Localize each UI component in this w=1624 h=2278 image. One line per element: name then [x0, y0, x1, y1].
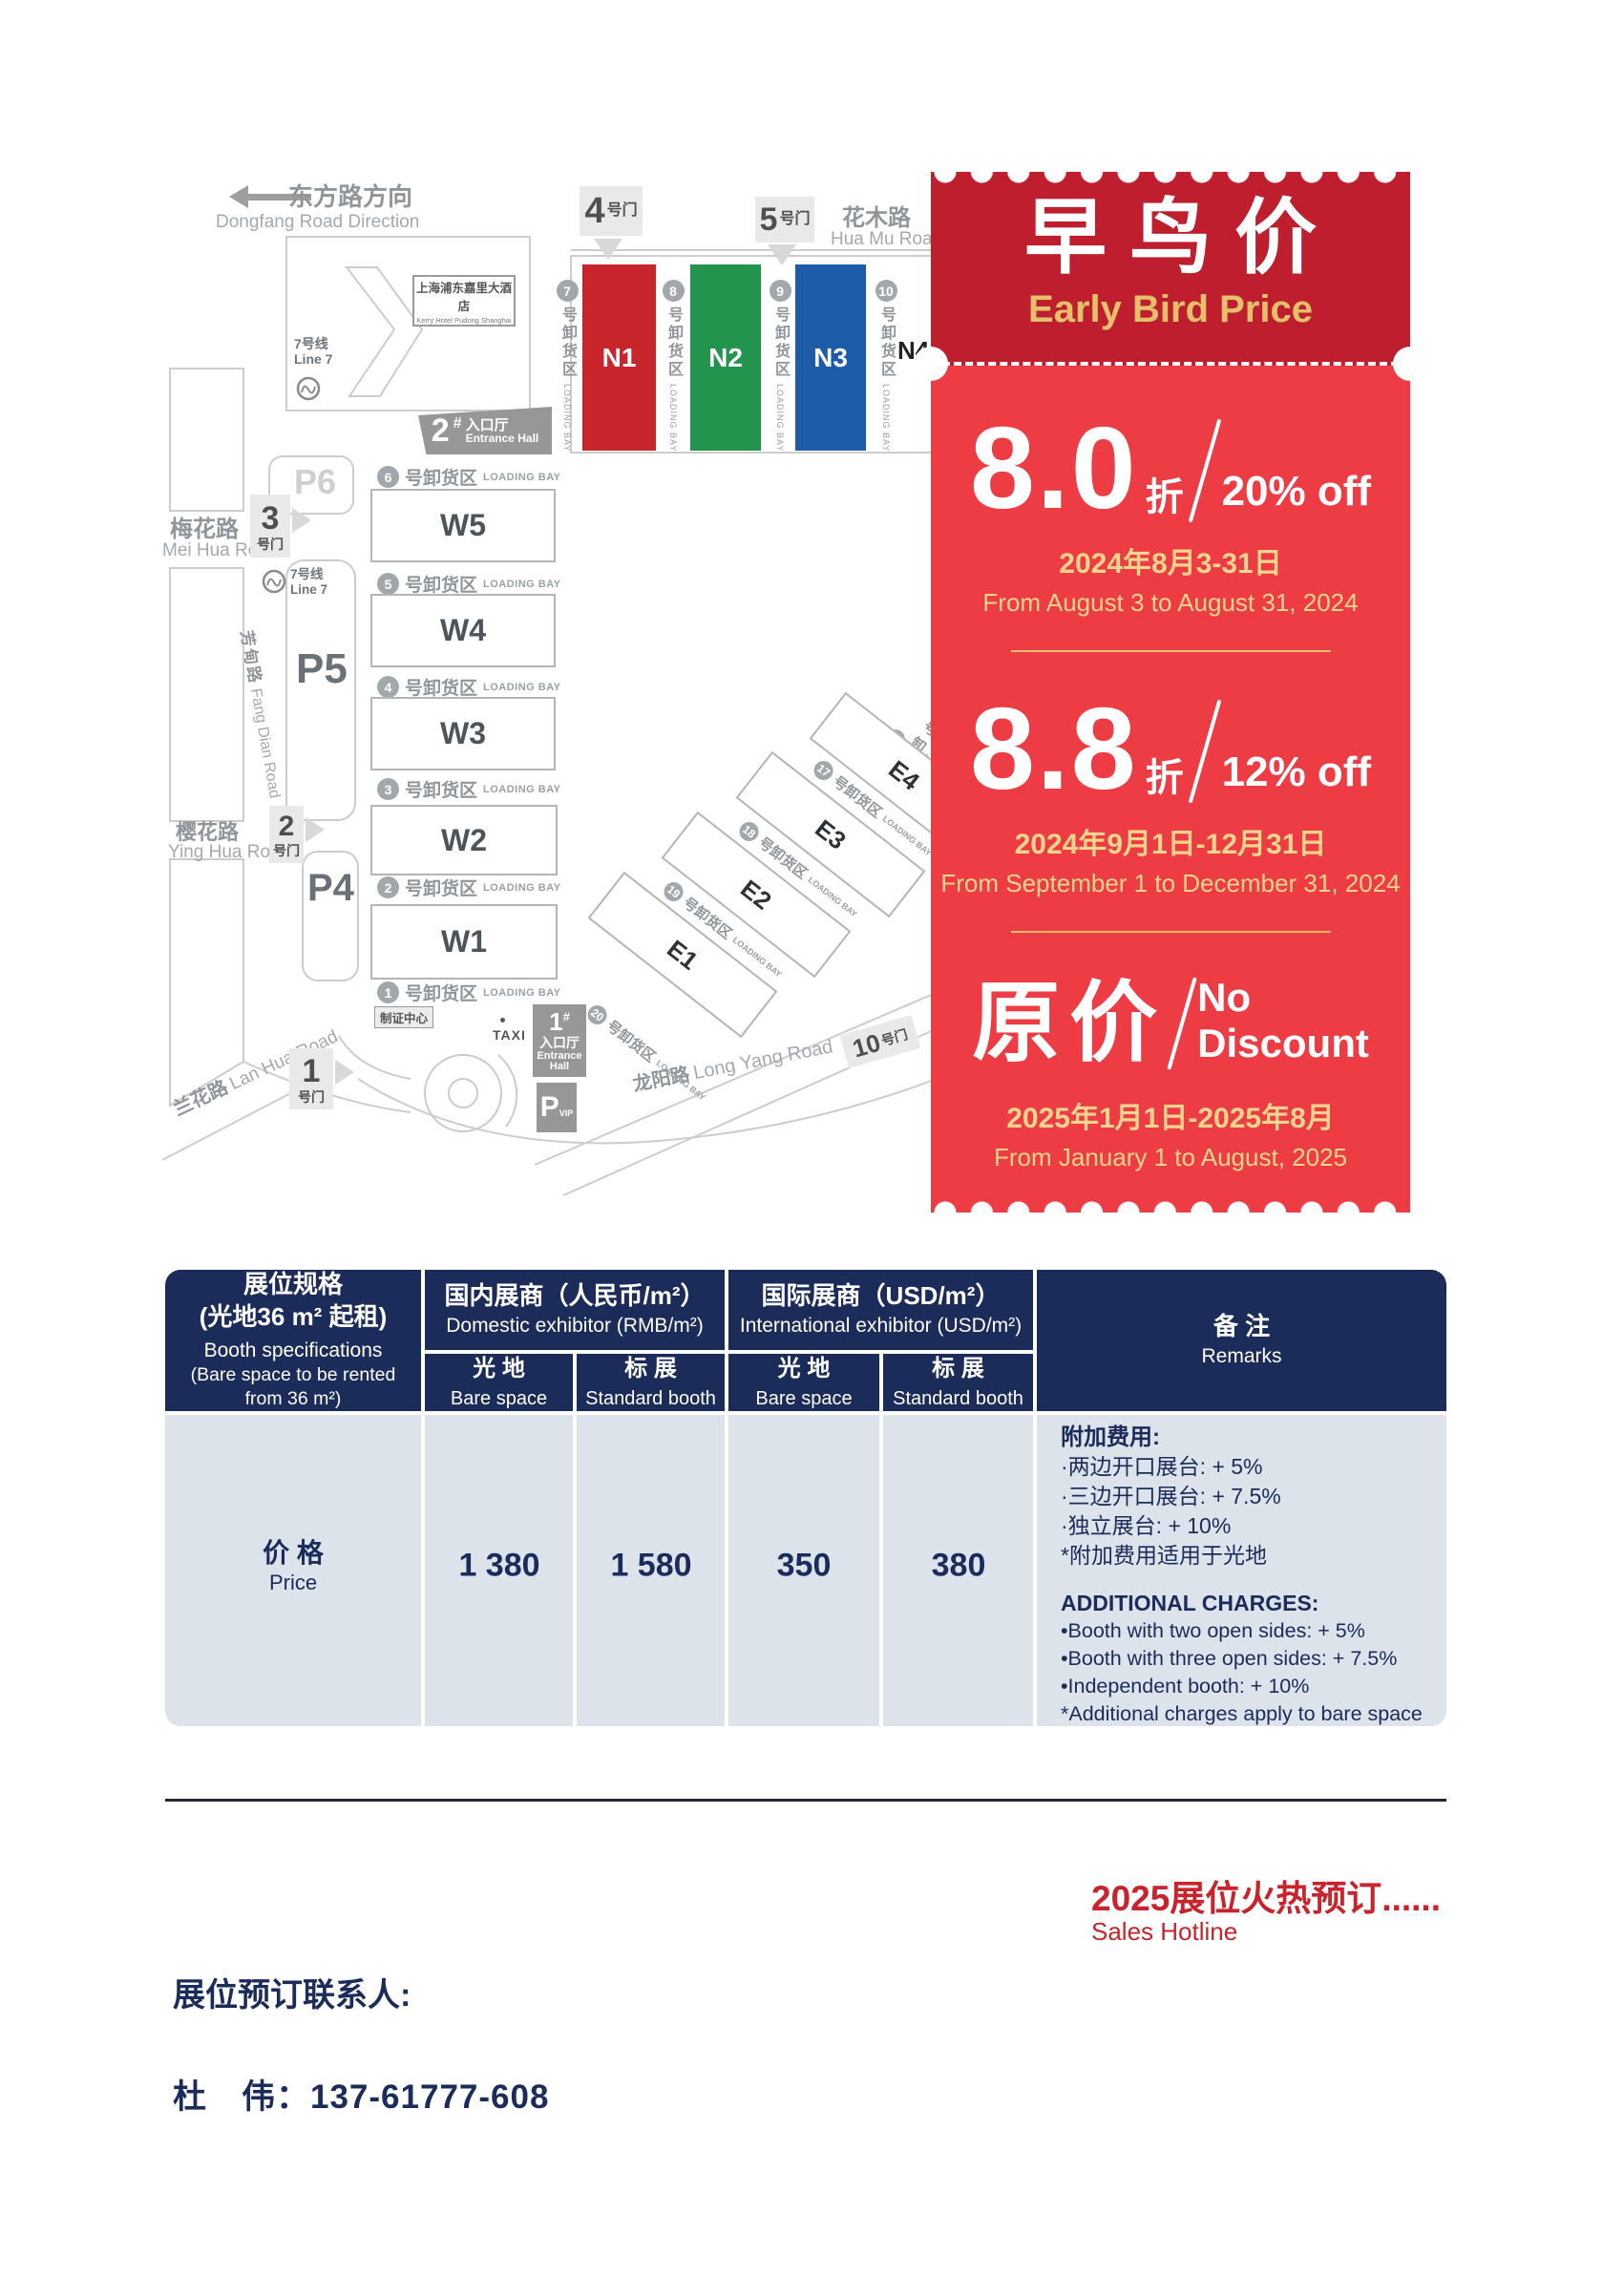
tier-2-date-en: From September 1 to December 31, 2024	[931, 869, 1410, 898]
dom-std-cn: 标 展	[624, 1354, 677, 1383]
gate-3-suffix: 号门	[257, 538, 284, 551]
kerry-hotel-label: 上海浦东嘉里大酒店 Kerry Hotel Pudong Shanghai	[412, 275, 516, 327]
gate-4-number: 4	[584, 193, 604, 229]
bay-6-cn: 号卸货区	[405, 464, 477, 490]
remarks-en-line: *Additional charges apply to bare space	[1061, 1700, 1439, 1728]
coupon-title-cn: 早鸟价	[931, 197, 1410, 279]
price-domestic-standard: 1 580	[610, 1548, 691, 1585]
metro-line7-icon-2	[262, 569, 286, 594]
remarks-cn-title: 附加费用:	[1061, 1423, 1439, 1452]
parking-vip-p: P	[540, 1093, 559, 1122]
contact-label: 展位预订联系人:	[173, 1969, 411, 2015]
table-separator	[879, 1415, 883, 1726]
tier-2-slash-icon	[1188, 700, 1221, 804]
tier-3-off-line1: No	[1197, 975, 1369, 1021]
coupon-scallop-bottom	[933, 1197, 1408, 1213]
tier-3-date-en: From January 1 to August, 2025	[931, 1143, 1410, 1172]
hall-n3: N3	[795, 264, 866, 451]
bay-5-number: 5	[377, 573, 399, 595]
tier-1-date-cn: 2024年8月3-31日	[931, 539, 1410, 581]
intl-std-cn: 标 展	[932, 1354, 984, 1383]
bay-7-en: LOADING BAY	[562, 384, 572, 452]
remarks-en-title: ADDITIONAL CHARGES:	[1061, 1590, 1439, 1617]
parking-vip: P VIP	[537, 1083, 577, 1132]
hall-n2-label: N2	[708, 343, 743, 373]
remarks-cell: 附加费用: ·两边开口展台: + 5% ·三边开口展台: + 7.5% ·独立展…	[1061, 1423, 1439, 1728]
gate-5-arrow-icon	[768, 244, 796, 280]
coupon-scallop-top	[933, 172, 1408, 186]
tier-3-off: No Discount	[1197, 975, 1369, 1067]
hall-n2: N2	[690, 264, 761, 451]
loading-bay-7: 7 号卸货区 LOADING BAY	[555, 280, 580, 452]
gate-1: 1号门	[289, 1048, 333, 1109]
entrance-hall-1: 1# 入口厅 Entrance Hall	[533, 1004, 586, 1077]
price-intl-standard: 380	[932, 1548, 986, 1585]
table-separator	[725, 1415, 728, 1726]
remarks-en-line: •Independent booth: + 10%	[1061, 1673, 1439, 1700]
loading-bay-2: 2 号卸货区 LOADING BAY	[377, 875, 561, 900]
bay-7-cn: 号卸货区	[556, 306, 579, 379]
entrance-2-number: 2	[432, 414, 450, 447]
arrow-tip	[218, 185, 248, 208]
price-row-label: 价 格 Price	[263, 1536, 324, 1596]
price-label-cn: 价 格	[263, 1536, 324, 1570]
hall-w5: W5	[370, 489, 556, 562]
subcol-intl-bare: 光 地 Bare space	[728, 1354, 879, 1411]
bay-2-cn: 号卸货区	[405, 875, 477, 900]
hotel-name-cn: 上海浦东嘉里大酒店	[414, 278, 514, 314]
bay-9-en: LOADING BAY	[775, 384, 785, 452]
parking-vip-sub: VIP	[559, 1109, 574, 1118]
bay-6-number: 6	[377, 466, 399, 488]
bay-1-en: LOADING BAY	[483, 987, 561, 999]
price-label-en: Price	[263, 1570, 324, 1596]
hall-w3: W3	[370, 697, 556, 770]
gate-2-arrow-icon	[306, 817, 337, 842]
entrance-1-cn: 入口厅	[539, 1036, 580, 1049]
road-dongfang-en: Dongfang Road Direction	[216, 212, 419, 233]
group-domestic-cn: 国内展商（人民币/m²）	[444, 1280, 705, 1313]
parking-p6: P6	[294, 462, 336, 502]
entrance-1-number: 1	[549, 1007, 562, 1036]
hall-w2-label: W2	[441, 823, 487, 858]
metro-cn-2: 7号线	[290, 567, 327, 582]
loading-bay-4: 4 号卸货区 LOADING BAY	[377, 674, 561, 700]
bay-3-cn: 号卸货区	[405, 776, 477, 802]
group-intl-en: International exhibitor (USD/m²)	[740, 1313, 1022, 1339]
coupon-notch-left	[914, 347, 948, 381]
taxi-label: TAXI	[493, 1027, 526, 1043]
dom-std-en: Standard booth	[585, 1386, 716, 1411]
tier-1-unit: 折	[1146, 478, 1184, 517]
gate-10-number: 10	[850, 1030, 883, 1062]
hall-w3-label: W3	[440, 716, 486, 751]
coupon-perforation	[942, 362, 1399, 366]
footer-divider	[165, 1799, 1446, 1802]
road-huamu-en: Hua Mu Road	[831, 229, 942, 250]
hall-e1-label: E1	[662, 934, 704, 976]
parking-p4: P4	[307, 867, 354, 910]
entrance-1-en: Entrance Hall	[537, 1051, 582, 1072]
entrance-2-hash: #	[453, 416, 462, 432]
group-domestic-header: 国内展商（人民币/m²） Domestic exhibitor (RMB/m²)	[425, 1270, 725, 1350]
col-remarks-header: 备 注 Remarks	[1037, 1270, 1446, 1411]
gate-2: 2号门	[269, 806, 304, 863]
remarks-en-line: •Booth with two open sides: + 5%	[1061, 1617, 1439, 1645]
road-meihua-cn: 梅花路	[170, 510, 239, 543]
tier-3-date-cn: 2025年1月1日-2025年8月	[931, 1094, 1410, 1136]
gate-3: 3号门	[250, 495, 290, 558]
road-huamu-cn: 花木路	[842, 199, 911, 232]
contact-phone: 杜 伟：137-61777-608	[173, 2070, 549, 2119]
spec-line3: Booth specifications	[204, 1338, 383, 1363]
dom-bare-en: Bare space	[451, 1386, 547, 1411]
taxi-dot-icon	[500, 1018, 505, 1023]
intl-bare-en: Bare space	[755, 1386, 852, 1411]
road-dongfang-cn: 东方路方向	[288, 178, 412, 213]
spec-line4: (Bare space to be rented	[191, 1363, 396, 1387]
bay-3-number: 3	[377, 778, 399, 800]
loading-bay-10: 10 号卸货区 LOADING BAY	[874, 280, 898, 452]
hall-e4-label: E4	[883, 754, 925, 796]
hall-w4-label: W4	[440, 613, 486, 648]
bay-1-cn: 号卸货区	[405, 980, 477, 1005]
badge-center: 制证中心	[374, 1006, 433, 1028]
tier-2-date-cn: 2024年9月1日-12月31日	[931, 820, 1410, 862]
loading-bay-3: 3 号卸货区 LOADING BAY	[377, 776, 561, 802]
bay-8-number: 8	[663, 280, 685, 302]
hall-n1: N1	[582, 264, 656, 451]
coupon-header: 早鸟价 Early Bird Price	[931, 172, 1410, 366]
table-separator	[421, 1415, 425, 1726]
gate-4-suffix: 号门	[607, 203, 638, 219]
hall-e3-label: E3	[810, 813, 852, 855]
bay-7-number: 7	[557, 280, 579, 302]
tier-3-slash-icon	[1167, 978, 1196, 1070]
bay-4-cn: 号卸货区	[405, 674, 477, 700]
loading-bay-8: 8 号卸货区 LOADING BAY	[661, 280, 685, 452]
group-intl-cn: 国际展商（USD/m²）	[762, 1280, 1001, 1313]
hall-e2-label: E2	[735, 874, 777, 916]
bay-9-number: 9	[770, 280, 791, 302]
bay-3-en: LOADING BAY	[483, 784, 561, 795]
remarks-cn-line: ·两边开口展台: + 5%	[1061, 1452, 1439, 1482]
price-domestic-bare: 1 380	[458, 1548, 539, 1585]
bay-6-en: LOADING BAY	[483, 472, 561, 483]
hall-w1: W1	[370, 904, 558, 980]
hall-n1-label: N1	[602, 343, 637, 373]
group-domestic-en: Domestic exhibitor (RMB/m²)	[446, 1313, 704, 1339]
loading-bay-5: 5 号卸货区 LOADING BAY	[377, 571, 561, 597]
hall-w5-label: W5	[440, 508, 486, 543]
tier-1-value: 8.0	[970, 410, 1138, 526]
gate-3-arrow-icon	[292, 508, 324, 533]
gate-1-arrow-icon	[335, 1060, 367, 1085]
coupon-body: 8.0 折 20% off 2024年8月3-31日 From August 3…	[931, 366, 1410, 1213]
tier-2-unit: 折	[1146, 759, 1184, 797]
hotline-title: 2025展位火热预订......	[1091, 1869, 1441, 1921]
bay-5-en: LOADING BAY	[483, 579, 561, 590]
gate-3-number: 3	[262, 502, 280, 535]
entrance-1-hash: #	[563, 1009, 570, 1023]
loading-bay-6: 6 号卸货区 LOADING BAY	[377, 464, 561, 490]
hotel-name-en: Kerry Hotel Pudong Shanghai	[414, 316, 514, 325]
metro-en-2: Line 7	[290, 582, 327, 598]
metro-line7-icon	[296, 376, 321, 401]
bay-8-cn: 号卸货区	[662, 306, 685, 379]
gate-10-suffix: 号门	[879, 1027, 909, 1047]
subcol-domestic-standard: 标 展 Standard booth	[577, 1354, 725, 1411]
early-bird-coupon: 早鸟价 Early Bird Price 8.0 折 20% off 2024年…	[931, 172, 1410, 1213]
tier-2-off: 12% off	[1222, 751, 1371, 793]
metro-cn: 7号线	[294, 336, 332, 351]
bay-9-cn: 号卸货区	[769, 306, 791, 379]
gate-2-suffix: 号门	[273, 844, 300, 857]
loading-bay-1: 1 号卸货区 LOADING BAY	[377, 980, 561, 1005]
venue-map: 东方路方向 Dongfang Road Direction 4号门 5号门 花木…	[162, 172, 969, 1222]
price-intl-bare: 350	[777, 1548, 832, 1585]
loading-bay-9: 9 号卸货区 LOADING BAY	[768, 280, 792, 452]
tier-3-off-line2: Discount	[1197, 1021, 1369, 1066]
hall-w2: W2	[370, 805, 558, 875]
spec-line2: (光地36 m² 起租)	[200, 1301, 387, 1334]
parking-p5: P5	[296, 645, 348, 693]
table-separator	[573, 1415, 577, 1726]
subcol-intl-standard: 标 展 Standard booth	[883, 1354, 1033, 1411]
remarks-cn-line: *附加费用适用于光地	[1061, 1541, 1439, 1571]
tier-1-date-en: From August 3 to August 31, 2024	[931, 588, 1410, 618]
gate-4: 4号门	[580, 186, 643, 236]
coupon-title-en: Early Bird Price	[931, 288, 1410, 331]
hotline-subtitle: Sales Hotline	[1091, 1917, 1237, 1947]
tier-3-row: 原价 No Discount	[931, 933, 1410, 1073]
bay-2-number: 2	[377, 876, 399, 898]
hall-w4: W4	[370, 594, 556, 667]
intl-std-en: Standard booth	[893, 1386, 1023, 1411]
col-spec-header: 展位规格 (光地36 m² 起租) Booth specifications (…	[165, 1270, 421, 1411]
bay-10-en: LOADING BAY	[881, 384, 891, 452]
intl-bare-cn: 光 地	[778, 1354, 831, 1383]
remarks-header-en: Remarks	[1201, 1343, 1281, 1369]
remarks-header-cn: 备 注	[1213, 1311, 1270, 1343]
bay-10-cn: 号卸货区	[875, 306, 897, 379]
bay-4-number: 4	[377, 676, 399, 698]
group-intl-header: 国际展商（USD/m²） International exhibitor (US…	[728, 1270, 1033, 1350]
bay-4-en: LOADING BAY	[483, 682, 561, 693]
price-table: 展位规格 (光地36 m² 起租) Booth specifications (…	[165, 1270, 1446, 1726]
dom-bare-cn: 光 地	[473, 1354, 525, 1383]
spec-line5: from 36 m²)	[245, 1387, 342, 1411]
tier-1-slash-icon	[1188, 419, 1221, 523]
flyer-page: 东方路方向 Dongfang Road Direction 4号门 5号门 花木…	[0, 0, 1624, 2278]
tier-2-row: 8.8 折 12% off	[931, 652, 1410, 807]
gate-2-number: 2	[279, 812, 295, 841]
metro-line7-label-upper: 7号线 Line 7	[294, 336, 332, 367]
bay-5-cn: 号卸货区	[405, 571, 477, 597]
bay-10-number: 10	[875, 280, 897, 302]
metro-line7-label-lower: 7号线 Line 7	[290, 567, 327, 597]
tier-1-row: 8.0 折 20% off	[931, 366, 1410, 526]
gate-5: 5号门	[755, 197, 814, 243]
hall-w1-label: W1	[441, 924, 487, 960]
gate-5-suffix: 号门	[779, 212, 810, 227]
table-separator	[1033, 1415, 1037, 1726]
remarks-cn-line: ·三边开口展台: + 7.5%	[1061, 1482, 1439, 1511]
coupon-notch-right	[1393, 347, 1427, 381]
spec-line1: 展位规格	[243, 1269, 343, 1301]
hall-n3-label: N3	[813, 343, 848, 373]
bay-8-en: LOADING BAY	[668, 384, 678, 452]
remarks-en-line: •Booth with three open sides: + 7.5%	[1061, 1645, 1439, 1673]
bay-2-en: LOADING BAY	[483, 882, 561, 894]
tier-2-value: 8.8	[970, 690, 1138, 807]
gate-1-suffix: 号门	[298, 1090, 325, 1104]
gate-5-number: 5	[760, 203, 778, 236]
bay-1-number: 1	[377, 981, 399, 1003]
tier-1-off: 20% off	[1222, 471, 1371, 513]
entrance-2-cn: 入口厅	[466, 418, 539, 432]
metro-en: Line 7	[294, 351, 332, 367]
entrance-2-en: Entrance Hall	[466, 432, 539, 444]
tier-3-value: 原价	[972, 980, 1167, 1067]
gate-1-number: 1	[303, 1055, 321, 1087]
subcol-domestic-bare: 光 地 Bare space	[425, 1354, 573, 1411]
remarks-cn-line: ·独立展台: + 10%	[1061, 1511, 1439, 1541]
